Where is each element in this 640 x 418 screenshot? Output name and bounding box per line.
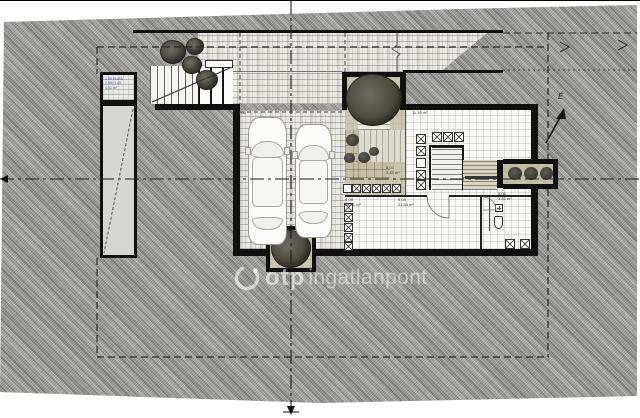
door-arc-bath xyxy=(483,197,496,210)
axis-arrow-bottom xyxy=(287,406,295,415)
ramp-diagonal xyxy=(104,109,133,253)
dimension-chevron-1 xyxy=(560,42,569,52)
dimension-chevron-2 xyxy=(618,40,627,50)
pavement-break-line xyxy=(392,33,400,72)
floor-plan-drawing: 1.05 KUKA 2.00×1.40 4.51 m² xyxy=(0,0,640,418)
annotation-layer xyxy=(0,0,640,418)
stair-diagonal xyxy=(152,68,230,102)
door-arc-hall xyxy=(427,196,449,218)
north-label: É xyxy=(558,92,563,101)
watermark: otp ingatlanpont xyxy=(232,262,428,294)
axis-arrow-left xyxy=(0,175,8,183)
otp-logo-icon xyxy=(232,263,262,293)
watermark-brand: otp xyxy=(265,264,305,292)
watermark-suffix: ingatlanpont xyxy=(308,266,427,290)
north-arrow-head xyxy=(556,108,566,119)
